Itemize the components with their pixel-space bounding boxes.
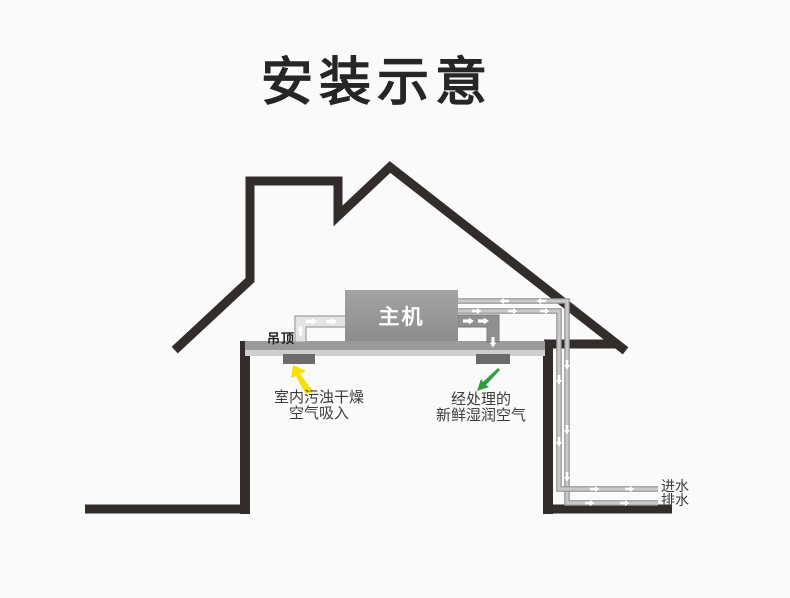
supply-annotation-line1: 经处理的	[406, 392, 556, 408]
intake-vent	[283, 354, 315, 364]
supply-vent	[476, 354, 510, 364]
intake-annotation-line2: 空气吸入	[244, 406, 394, 422]
water-inlet-label: 进水	[661, 479, 689, 493]
supply-flow-arrow-icon	[477, 368, 500, 391]
supply-annotation-line2: 新鲜湿润空气	[406, 408, 556, 424]
intake-annotation-line1: 室内污浊干燥	[244, 390, 394, 406]
main-unit-label: 主机	[345, 290, 458, 341]
installation-diagram: 安装示意 主机 吊顶 室内污浊干燥 空气吸入 经处理的 新鲜湿润空气 进水 排水	[0, 0, 790, 598]
page-title: 安装示意	[261, 40, 493, 115]
supply-annotation: 经处理的 新鲜湿润空气	[406, 392, 556, 424]
water-drain-label: 排水	[661, 493, 689, 507]
intake-annotation: 室内污浊干燥 空气吸入	[244, 390, 394, 422]
ceiling-label: 吊顶	[267, 328, 295, 347]
